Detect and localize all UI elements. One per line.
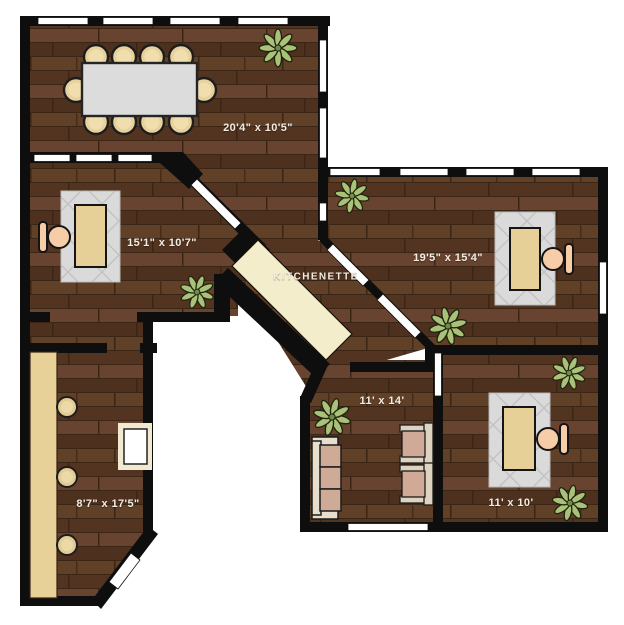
appliance [118, 423, 152, 470]
floor-plan: 20'4" x 10'5" 15'1" x 10'7" KITCHENETTE … [0, 0, 624, 625]
desk [503, 407, 535, 470]
armchair [400, 463, 433, 505]
conference-table-set [64, 45, 216, 134]
floor-plan-canvas [0, 0, 624, 625]
bar-stool [57, 397, 77, 417]
bar-counter [30, 352, 57, 598]
plant-icon [259, 29, 297, 67]
sofa [312, 437, 341, 519]
bar-stool [57, 467, 77, 487]
conference-table [82, 63, 197, 116]
desk [75, 205, 106, 267]
desk [510, 228, 540, 290]
armchair [400, 423, 433, 465]
bar-stool [57, 535, 77, 555]
